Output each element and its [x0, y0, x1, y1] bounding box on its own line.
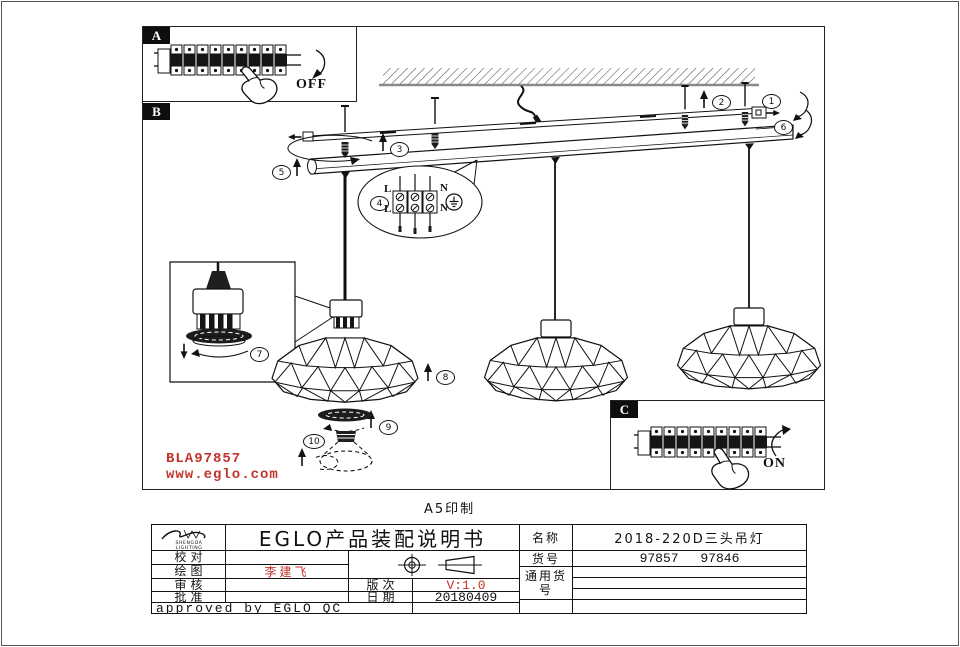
print-note: A5印制: [424, 498, 475, 517]
terminal-n-top: N: [440, 182, 448, 194]
drawing-value: 李建飞: [226, 565, 349, 579]
proofread-value: [226, 551, 349, 565]
middle-lamp-socket: [541, 320, 571, 337]
drawing-label: 绘图: [152, 565, 226, 579]
item-label: 货号: [520, 551, 573, 567]
on-label: ON: [763, 456, 786, 472]
right-lamp-socket: [734, 308, 764, 325]
approval-value: [226, 592, 349, 603]
callout-6: 6: [774, 120, 793, 135]
rotate-arrows: [796, 92, 812, 135]
ground-icon: [446, 194, 462, 210]
approval-label: 批准: [152, 592, 226, 603]
version-label: 版次: [349, 579, 413, 592]
first-angle-projection-icon: [354, 552, 514, 578]
off-label: OFF: [296, 77, 327, 93]
watermark-url: www.eglo.com: [166, 467, 279, 483]
common-item-value-2: [573, 578, 806, 589]
common-item-label: 通用货号: [520, 567, 573, 600]
mains-cable: [518, 86, 535, 116]
logo-cell: SHENGDA LIGHTING: [152, 525, 226, 551]
callout-2: 2: [712, 95, 731, 110]
common-item-value-3: [573, 589, 806, 600]
bottom-right-value-cell: [573, 600, 806, 613]
title-block-table: SHENGDA LIGHTING EGLO产品装配说明书 校对 绘图 李建飞 审…: [151, 524, 807, 614]
callout-3: 3: [390, 142, 409, 157]
svg-text:LIGHTING: LIGHTING: [175, 545, 202, 550]
terminal-l-bottom: L: [384, 203, 391, 215]
approved-empty-cell: [413, 603, 520, 613]
name-value: 2018-220D三头吊灯: [573, 525, 806, 551]
date-value: 20180409: [413, 592, 520, 603]
callout-8: 8: [436, 370, 455, 385]
watermark-code: BLA97857: [166, 451, 241, 467]
callout-5: 5: [272, 165, 291, 180]
terminal-l-top: L: [384, 183, 391, 195]
callout-7: 7: [250, 347, 269, 362]
instruction-sheet-page: { "page": { "print_note": "A5印制" }, "dia…: [0, 0, 960, 647]
review-value: [226, 579, 349, 592]
callout-9: 9: [379, 420, 398, 435]
proofread-label: 校对: [152, 551, 226, 565]
shengda-logo: SHENGDA LIGHTING: [154, 526, 224, 550]
left-lamp-socket: [330, 300, 362, 328]
common-item-value-1: [573, 567, 806, 578]
terminal-n-bottom: N: [440, 202, 448, 214]
date-label: 日期: [349, 592, 413, 603]
projection-symbol-cell: [349, 551, 520, 579]
name-label: 名称: [520, 525, 573, 551]
callout-10: 10: [303, 434, 325, 449]
callout-1: 1: [762, 94, 781, 109]
left-lamp-ring: [318, 409, 372, 432]
version-value: V:1.0: [413, 579, 520, 592]
bottom-right-label-cell: [520, 600, 573, 613]
ceiling-hatch: [383, 68, 755, 84]
item-value: 97857 97846: [573, 551, 806, 567]
doc-title: EGLO产品装配说明书: [226, 525, 520, 551]
approved-note: approved by EGLO QC: [152, 603, 413, 613]
review-label: 审核: [152, 579, 226, 592]
